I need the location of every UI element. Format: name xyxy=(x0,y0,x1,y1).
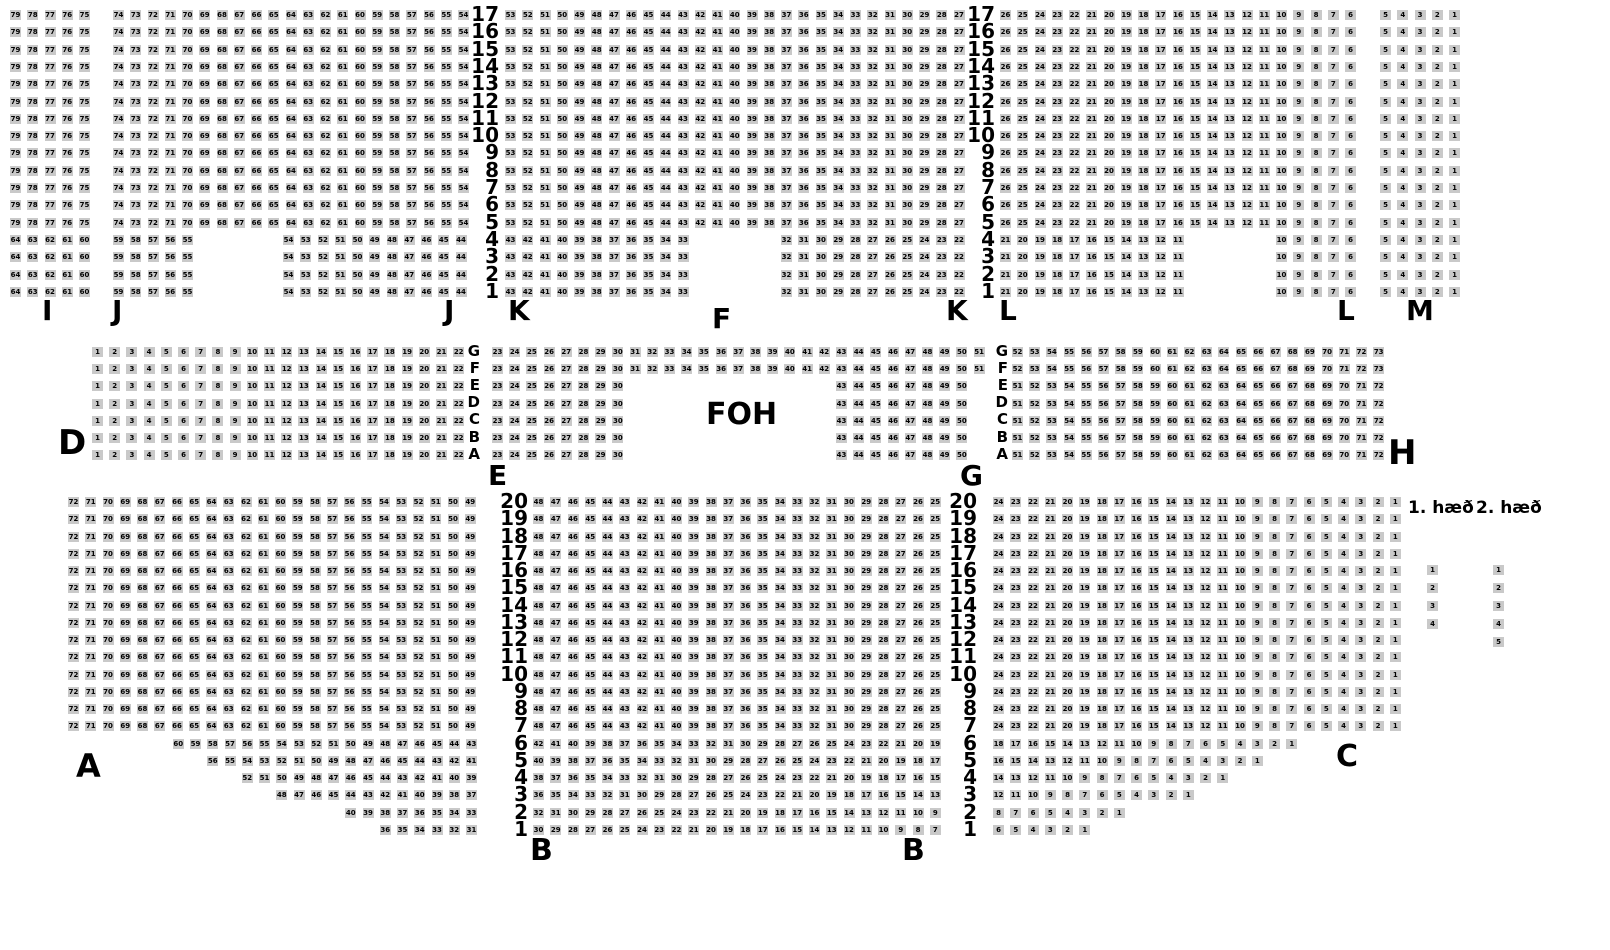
seat[interactable]: 49 xyxy=(574,200,585,210)
seat[interactable]: 69 xyxy=(199,27,210,37)
seat[interactable]: 58 xyxy=(130,235,141,245)
seat[interactable]: 73 xyxy=(130,166,141,176)
seat[interactable]: 5 xyxy=(1380,45,1391,55)
seat[interactable]: 12 xyxy=(1200,618,1211,628)
seat[interactable]: 15 xyxy=(895,790,906,800)
seat[interactable]: 56 xyxy=(1098,433,1109,443)
seat[interactable]: 70 xyxy=(103,687,114,697)
seat[interactable]: 17 xyxy=(1155,79,1166,89)
seat[interactable]: 33 xyxy=(654,756,665,766)
seat[interactable]: 29 xyxy=(757,739,768,749)
seat[interactable]: 13 xyxy=(1138,287,1149,297)
seat[interactable]: 55 xyxy=(361,566,372,576)
seat[interactable]: 22 xyxy=(1069,218,1080,228)
seat[interactable]: 39 xyxy=(688,549,699,559)
seat[interactable]: 78 xyxy=(27,79,38,89)
seat[interactable]: 40 xyxy=(557,270,568,280)
seat[interactable]: 65 xyxy=(189,532,200,542)
seat[interactable]: 8 xyxy=(1311,200,1322,210)
seat[interactable]: 61 xyxy=(1167,347,1178,357)
seat[interactable]: 3 xyxy=(1355,652,1366,662)
seat[interactable]: 53 xyxy=(505,62,516,72)
seat[interactable]: 34 xyxy=(775,549,786,559)
seat[interactable]: 26 xyxy=(1000,10,1011,20)
seat[interactable]: 26 xyxy=(706,790,717,800)
seat[interactable]: 31 xyxy=(885,218,896,228)
seat[interactable]: 13 xyxy=(298,364,309,374)
seat[interactable]: 34 xyxy=(637,756,648,766)
seat[interactable]: 26 xyxy=(637,808,648,818)
seat[interactable]: 34 xyxy=(775,635,786,645)
seat[interactable]: 54 xyxy=(1064,450,1075,460)
seat[interactable]: 29 xyxy=(861,601,872,611)
seat[interactable]: 10 xyxy=(1276,166,1287,176)
seat[interactable]: 64 xyxy=(286,218,297,228)
seat[interactable]: 54 xyxy=(276,739,287,749)
seat[interactable]: 47 xyxy=(609,62,620,72)
seat[interactable]: 44 xyxy=(660,200,671,210)
seat[interactable]: 1 xyxy=(1449,270,1460,280)
seat[interactable]: 25 xyxy=(1017,114,1028,124)
seat[interactable]: 61 xyxy=(258,497,269,507)
seat[interactable]: 28 xyxy=(936,166,947,176)
seat[interactable]: 9 xyxy=(1079,773,1090,783)
seat[interactable]: 37 xyxy=(619,739,630,749)
seat[interactable]: 44 xyxy=(602,670,613,680)
seat[interactable]: 23 xyxy=(492,416,503,426)
seat[interactable]: 44 xyxy=(853,433,864,443)
seat[interactable]: 28 xyxy=(850,252,861,262)
seat[interactable]: 26 xyxy=(885,270,896,280)
seat[interactable]: 70 xyxy=(103,566,114,576)
seat[interactable]: 30 xyxy=(902,97,913,107)
seat[interactable]: 67 xyxy=(1287,416,1298,426)
seat[interactable]: 72 xyxy=(68,497,79,507)
seat[interactable]: 47 xyxy=(550,514,561,524)
seat[interactable]: 27 xyxy=(895,721,906,731)
seat[interactable]: 29 xyxy=(861,549,872,559)
seat[interactable]: 16 xyxy=(1131,704,1142,714)
seat[interactable]: 1 xyxy=(92,347,103,357)
seat[interactable]: 19 xyxy=(1121,148,1132,158)
seat[interactable]: 49 xyxy=(465,566,476,576)
seat[interactable]: 1 xyxy=(1449,131,1460,141)
seat[interactable]: 15 xyxy=(1148,670,1159,680)
seat[interactable]: 65 xyxy=(268,166,279,176)
seat[interactable]: 33 xyxy=(850,27,861,37)
seat[interactable]: 52 xyxy=(413,514,424,524)
seat[interactable]: 64 xyxy=(1218,364,1229,374)
seat[interactable]: 3 xyxy=(1355,704,1366,714)
seat[interactable]: 42 xyxy=(695,10,706,20)
seat[interactable]: 32 xyxy=(867,131,878,141)
seat[interactable]: 17 xyxy=(1155,62,1166,72)
seat[interactable]: 39 xyxy=(767,364,778,374)
seat[interactable]: 43 xyxy=(619,601,630,611)
seat[interactable]: 10 xyxy=(1028,790,1039,800)
seat[interactable]: 60 xyxy=(275,635,286,645)
seat[interactable]: 39 xyxy=(747,114,758,124)
seat[interactable]: 3 xyxy=(126,364,137,374)
seat[interactable]: 45 xyxy=(585,497,596,507)
seat[interactable]: 4 xyxy=(1166,773,1177,783)
seat[interactable]: 11 xyxy=(1259,45,1270,55)
seat[interactable]: 63 xyxy=(27,270,38,280)
seat[interactable]: 1 xyxy=(1449,200,1460,210)
seat[interactable]: 8 xyxy=(1311,45,1322,55)
seat[interactable]: 72 xyxy=(148,166,159,176)
seat[interactable]: 23 xyxy=(936,252,947,262)
seat[interactable]: 47 xyxy=(550,670,561,680)
seat[interactable]: 46 xyxy=(888,450,899,460)
seat[interactable]: 42 xyxy=(695,131,706,141)
seat[interactable]: 57 xyxy=(148,287,159,297)
seat[interactable]: 37 xyxy=(397,808,408,818)
seat[interactable]: 61 xyxy=(258,532,269,542)
seat[interactable]: 47 xyxy=(363,756,374,766)
seat[interactable]: 71 xyxy=(165,131,176,141)
seat[interactable]: 11 xyxy=(895,808,906,818)
seat[interactable]: 66 xyxy=(1270,433,1281,443)
seat[interactable]: 73 xyxy=(130,218,141,228)
seat[interactable]: 77 xyxy=(45,45,56,55)
seat[interactable]: 15 xyxy=(1148,601,1159,611)
seat[interactable]: 9 xyxy=(1293,252,1304,262)
seat[interactable]: 32 xyxy=(867,97,878,107)
seat[interactable]: 69 xyxy=(199,10,210,20)
seat[interactable]: 30 xyxy=(844,721,855,731)
seat[interactable]: 70 xyxy=(1339,381,1350,391)
seat[interactable]: 73 xyxy=(1373,347,1384,357)
seat[interactable]: 6 xyxy=(1345,218,1356,228)
seat[interactable]: 3 xyxy=(1415,166,1426,176)
seat[interactable]: 69 xyxy=(120,721,131,731)
seat[interactable]: 47 xyxy=(404,235,415,245)
seat[interactable]: 32 xyxy=(602,790,613,800)
seat[interactable]: 70 xyxy=(103,549,114,559)
seat[interactable]: 15 xyxy=(333,433,344,443)
seat[interactable]: 58 xyxy=(1132,433,1143,443)
seat[interactable]: 7 xyxy=(1286,704,1297,714)
seat[interactable]: 53 xyxy=(505,97,516,107)
seat[interactable]: 63 xyxy=(303,62,314,72)
seat[interactable]: 9 xyxy=(230,364,241,374)
seat[interactable]: 44 xyxy=(602,514,613,524)
seat[interactable]: 56 xyxy=(344,549,355,559)
seat[interactable]: 68 xyxy=(1304,416,1315,426)
seat[interactable]: 61 xyxy=(337,10,348,20)
seat[interactable]: 32 xyxy=(809,583,820,593)
seat[interactable]: 26 xyxy=(544,416,555,426)
seat[interactable]: 51 xyxy=(430,687,441,697)
seat[interactable]: 55 xyxy=(361,532,372,542)
seat[interactable]: 61 xyxy=(258,652,269,662)
seat[interactable]: 52 xyxy=(242,773,253,783)
seat[interactable]: 8 xyxy=(1311,287,1322,297)
seat[interactable]: 20 xyxy=(844,773,855,783)
seat[interactable]: 19 xyxy=(723,825,734,835)
seat[interactable]: 8 xyxy=(212,416,223,426)
seat[interactable]: 35 xyxy=(816,183,827,193)
seat[interactable]: 23 xyxy=(1010,635,1021,645)
seat[interactable]: 59 xyxy=(372,166,383,176)
seat[interactable]: 7 xyxy=(1286,687,1297,697)
seat[interactable]: 18 xyxy=(1097,583,1108,593)
seat[interactable]: 25 xyxy=(902,235,913,245)
seat[interactable]: 57 xyxy=(406,183,417,193)
seat[interactable]: 67 xyxy=(154,721,165,731)
seat[interactable]: 15 xyxy=(1148,549,1159,559)
seat[interactable]: 24 xyxy=(1035,131,1046,141)
seat[interactable]: 45 xyxy=(585,532,596,542)
seat[interactable]: 37 xyxy=(781,62,792,72)
seat[interactable]: 59 xyxy=(1150,450,1161,460)
seat[interactable]: 66 xyxy=(251,27,262,37)
seat[interactable]: 1 xyxy=(92,399,103,409)
seat[interactable]: 19 xyxy=(1121,114,1132,124)
seat[interactable]: 40 xyxy=(729,200,740,210)
seat[interactable]: 51 xyxy=(430,618,441,628)
seat[interactable]: 13 xyxy=(1183,601,1194,611)
seat[interactable]: 45 xyxy=(585,670,596,680)
seat[interactable]: 11 xyxy=(1259,114,1270,124)
seat[interactable]: 27 xyxy=(895,532,906,542)
seat[interactable]: 45 xyxy=(870,399,881,409)
seat[interactable]: 13 xyxy=(1010,773,1021,783)
seat[interactable]: 63 xyxy=(303,131,314,141)
seat[interactable]: 6 xyxy=(1304,514,1315,524)
seat[interactable]: 42 xyxy=(637,566,648,576)
seat[interactable]: 4 xyxy=(144,450,155,460)
seat[interactable]: 17 xyxy=(1010,739,1021,749)
seat[interactable]: 34 xyxy=(833,148,844,158)
seat[interactable]: 72 xyxy=(148,27,159,37)
seat[interactable]: 14 xyxy=(1207,97,1218,107)
seat[interactable]: 68 xyxy=(217,62,228,72)
seat[interactable]: 55 xyxy=(225,756,236,766)
seat[interactable]: 41 xyxy=(540,270,551,280)
seat[interactable]: 54 xyxy=(379,549,390,559)
seat[interactable]: 41 xyxy=(712,10,723,20)
seat[interactable]: 52 xyxy=(522,148,533,158)
seat[interactable]: 25 xyxy=(1017,166,1028,176)
seat[interactable]: 17 xyxy=(1114,566,1125,576)
seat[interactable]: 42 xyxy=(637,635,648,645)
seat[interactable]: 18 xyxy=(1138,62,1149,72)
seat[interactable]: 24 xyxy=(740,790,751,800)
seat[interactable]: 57 xyxy=(1115,381,1126,391)
seat[interactable]: 55 xyxy=(441,166,452,176)
seat[interactable]: 65 xyxy=(268,114,279,124)
seat[interactable]: 39 xyxy=(747,79,758,89)
seat[interactable]: 64 xyxy=(206,497,217,507)
seat[interactable]: 31 xyxy=(826,635,837,645)
seat[interactable]: 11 xyxy=(1217,721,1228,731)
seat[interactable]: 53 xyxy=(1046,433,1057,443)
seat[interactable]: 14 xyxy=(1166,652,1177,662)
seat[interactable]: 17 xyxy=(792,808,803,818)
seat[interactable]: 52 xyxy=(522,79,533,89)
seat[interactable]: 63 xyxy=(223,514,234,524)
seat[interactable]: 39 xyxy=(767,347,778,357)
seat[interactable]: 33 xyxy=(850,45,861,55)
seat[interactable]: 1 xyxy=(1449,235,1460,245)
seat[interactable]: 8 xyxy=(1311,252,1322,262)
seat[interactable]: 50 xyxy=(276,773,287,783)
seat[interactable]: 31 xyxy=(826,514,837,524)
seat[interactable]: 23 xyxy=(1010,721,1021,731)
seat[interactable]: 50 xyxy=(557,79,568,89)
seat[interactable]: 41 xyxy=(712,27,723,37)
seat[interactable]: 15 xyxy=(333,450,344,460)
seat[interactable]: 2 xyxy=(1373,721,1384,731)
seat[interactable]: 23 xyxy=(1010,532,1021,542)
seat[interactable]: 60 xyxy=(1150,364,1161,374)
seat[interactable]: 51 xyxy=(540,27,551,37)
seat[interactable]: 57 xyxy=(406,166,417,176)
seat[interactable]: 38 xyxy=(764,131,775,141)
seat[interactable]: 10 xyxy=(1235,652,1246,662)
seat[interactable]: 17 xyxy=(1155,45,1166,55)
seat[interactable]: 21 xyxy=(1086,148,1097,158)
seat[interactable]: 38 xyxy=(764,166,775,176)
seat[interactable]: 15 xyxy=(333,399,344,409)
seat[interactable]: 10 xyxy=(1276,235,1287,245)
seat[interactable]: 5 xyxy=(1380,183,1391,193)
seat[interactable]: 57 xyxy=(406,148,417,158)
seat[interactable]: 2 xyxy=(1373,549,1384,559)
seat[interactable]: 29 xyxy=(861,497,872,507)
seat[interactable]: 44 xyxy=(853,416,864,426)
seat[interactable]: 13 xyxy=(1183,583,1194,593)
seat[interactable]: 8 xyxy=(1311,148,1322,158)
seat[interactable]: 56 xyxy=(344,497,355,507)
seat[interactable]: 13 xyxy=(1183,514,1194,524)
seat[interactable]: 64 xyxy=(10,252,21,262)
seat[interactable]: 39 xyxy=(585,739,596,749)
seat[interactable]: 31 xyxy=(619,790,630,800)
seat[interactable]: 43 xyxy=(619,514,630,524)
seat[interactable]: 55 xyxy=(361,618,372,628)
seat[interactable]: 14 xyxy=(1121,252,1132,262)
seat[interactable]: 61 xyxy=(258,687,269,697)
seat[interactable]: 26 xyxy=(544,450,555,460)
seat[interactable]: 36 xyxy=(798,218,809,228)
seat[interactable]: 10 xyxy=(1276,45,1287,55)
seat[interactable]: 43 xyxy=(678,79,689,89)
seat[interactable]: 18 xyxy=(878,773,889,783)
seat[interactable]: 5 xyxy=(1010,825,1021,835)
seat[interactable]: 54 xyxy=(379,601,390,611)
seat[interactable]: 36 xyxy=(568,773,579,783)
seat[interactable]: 26 xyxy=(913,601,924,611)
seat[interactable]: 53 xyxy=(505,183,516,193)
seat[interactable]: 21 xyxy=(1086,79,1097,89)
seat[interactable]: 79 xyxy=(10,200,21,210)
seat[interactable]: 57 xyxy=(327,687,338,697)
seat[interactable]: 1 xyxy=(1114,808,1125,818)
seat[interactable]: 26 xyxy=(913,549,924,559)
seat[interactable]: 66 xyxy=(172,583,183,593)
seat[interactable]: 12 xyxy=(1155,270,1166,280)
seat[interactable]: 23 xyxy=(1052,131,1063,141)
seat[interactable]: 54 xyxy=(242,756,253,766)
seat[interactable]: 27 xyxy=(757,756,768,766)
seat[interactable]: 31 xyxy=(826,532,837,542)
seat[interactable]: 45 xyxy=(643,148,654,158)
seat[interactable]: 42 xyxy=(695,45,706,55)
seat[interactable]: 35 xyxy=(757,532,768,542)
seat[interactable]: 66 xyxy=(172,670,183,680)
seat[interactable]: 48 xyxy=(533,566,544,576)
seat[interactable]: 23 xyxy=(1010,601,1021,611)
seat[interactable]: 14 xyxy=(1166,670,1177,680)
seat[interactable]: 9 xyxy=(1293,235,1304,245)
seat[interactable]: 15 xyxy=(1148,704,1159,714)
seat[interactable]: 15 xyxy=(333,416,344,426)
seat[interactable]: 31 xyxy=(826,721,837,731)
seat[interactable]: 6 xyxy=(1304,532,1315,542)
seat[interactable]: 56 xyxy=(424,183,435,193)
seat[interactable]: 12 xyxy=(1200,721,1211,731)
seat[interactable]: 56 xyxy=(344,601,355,611)
seat[interactable]: 52 xyxy=(413,618,424,628)
seat[interactable]: 11 xyxy=(264,450,275,460)
seat[interactable]: 17 xyxy=(367,381,378,391)
seat[interactable]: 71 xyxy=(165,97,176,107)
seat[interactable]: 7 xyxy=(1328,131,1339,141)
seat[interactable]: 2 xyxy=(1432,252,1443,262)
seat[interactable]: 22 xyxy=(1028,687,1039,697)
seat[interactable]: 36 xyxy=(740,635,751,645)
seat[interactable]: 46 xyxy=(568,618,579,628)
seat[interactable]: 14 xyxy=(1166,497,1177,507)
seat[interactable]: 59 xyxy=(292,704,303,714)
seat[interactable]: 28 xyxy=(936,131,947,141)
seat[interactable]: 47 xyxy=(550,566,561,576)
seat[interactable]: 6 xyxy=(178,450,189,460)
seat[interactable]: 1 xyxy=(1449,166,1460,176)
seat[interactable]: 25 xyxy=(826,739,837,749)
seat[interactable]: 27 xyxy=(867,287,878,297)
seat[interactable]: 60 xyxy=(1167,433,1178,443)
seat[interactable]: 31 xyxy=(885,27,896,37)
seat[interactable]: 22 xyxy=(1028,583,1039,593)
seat[interactable]: 28 xyxy=(568,825,579,835)
seat[interactable]: 56 xyxy=(344,532,355,542)
seat[interactable]: 42 xyxy=(637,687,648,697)
seat[interactable]: 35 xyxy=(643,235,654,245)
seat[interactable]: 39 xyxy=(550,756,561,766)
seat[interactable]: 72 xyxy=(68,601,79,611)
seat[interactable]: 53 xyxy=(1029,347,1040,357)
seat[interactable]: 24 xyxy=(775,773,786,783)
seat[interactable]: 48 xyxy=(591,200,602,210)
seat[interactable]: 11 xyxy=(1173,270,1184,280)
seat[interactable]: 35 xyxy=(619,756,630,766)
seat[interactable]: 71 xyxy=(85,670,96,680)
seat[interactable]: 49 xyxy=(574,131,585,141)
seat[interactable]: 5 xyxy=(1321,670,1332,680)
seat[interactable]: 34 xyxy=(775,670,786,680)
seat[interactable]: 30 xyxy=(816,235,827,245)
seat[interactable]: 31 xyxy=(826,687,837,697)
seat[interactable]: 46 xyxy=(345,773,356,783)
seat[interactable]: 32 xyxy=(533,808,544,818)
seat[interactable]: 5 xyxy=(1321,497,1332,507)
seat[interactable]: 60 xyxy=(355,62,366,72)
seat[interactable]: 24 xyxy=(1035,79,1046,89)
